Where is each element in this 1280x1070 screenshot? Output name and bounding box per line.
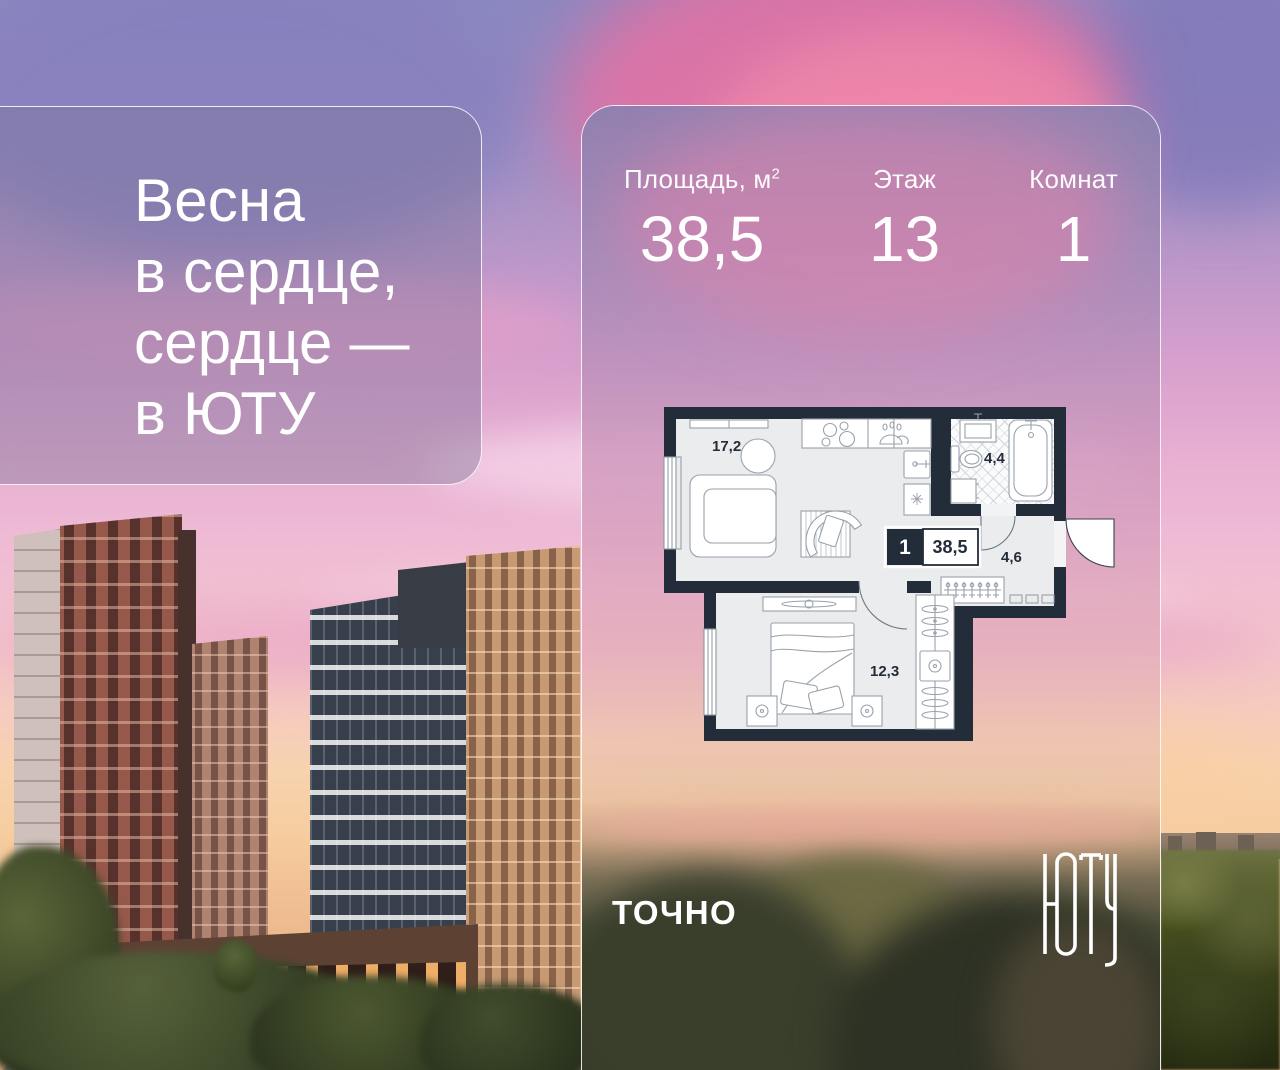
promo-line: сердце — [134, 307, 481, 378]
yutu-logo-icon [1040, 852, 1120, 968]
promo-line: в ЮТУ [134, 378, 481, 449]
street-tree [214, 940, 258, 992]
promo-line: в сердце, [134, 236, 481, 307]
project-logo: ЮТУ [1040, 852, 1120, 968]
promo-card: Весна в сердце, сердце — в ЮТУ [0, 106, 482, 485]
badge-area: 38,5 [932, 537, 967, 557]
tower-glass-crown [398, 562, 470, 648]
apartment-panel: Площадь, м2 38,5 Этаж 13 Комнат 1 [581, 105, 1161, 1070]
specs-row: Площадь, м2 38,5 Этаж 13 Комнат 1 [582, 164, 1160, 271]
promo-line: Весна [134, 165, 481, 236]
badge-rooms: 1 [899, 536, 911, 559]
spec-area-value: 38,5 [624, 207, 780, 271]
room-label-hallway: 4,6 [1001, 549, 1022, 566]
entry-door-gap [1054, 521, 1066, 567]
room-label-bedroom: 12,3 [870, 663, 899, 680]
plan-badge: 1 38,5 [885, 527, 980, 567]
room-label-living: 17,2 [712, 438, 741, 455]
floor-plan-svg: 17,2 4,4 4,6 12,3 1 38,5 [654, 399, 1119, 751]
spec-area-label: Площадь, м2 [624, 164, 780, 195]
spec-floor-value: 13 [869, 207, 940, 271]
spec-area: Площадь, м2 38,5 [624, 164, 780, 271]
developer-logo: ТОЧНО [612, 894, 737, 932]
ad-banner: Весна в сердце, сердце — в ЮТУ Площадь, … [0, 0, 1280, 1070]
spec-floor: Этаж 13 [869, 164, 940, 271]
room-label-bathroom: 4,4 [984, 450, 1006, 467]
bath-door-gap [981, 504, 1016, 516]
spec-floor-label: Этаж [869, 164, 940, 195]
spec-rooms: Комнат 1 [1029, 164, 1118, 271]
spec-rooms-value: 1 [1029, 207, 1118, 271]
panel-horizon [582, 804, 1161, 846]
floor-plan: 17,2 4,4 4,6 12,3 1 38,5 [654, 399, 1119, 751]
bedroom-door-gap [859, 581, 907, 593]
spec-rooms-label: Комнат [1029, 164, 1118, 195]
trees [420, 984, 600, 1070]
trees-right [1160, 850, 1280, 1070]
